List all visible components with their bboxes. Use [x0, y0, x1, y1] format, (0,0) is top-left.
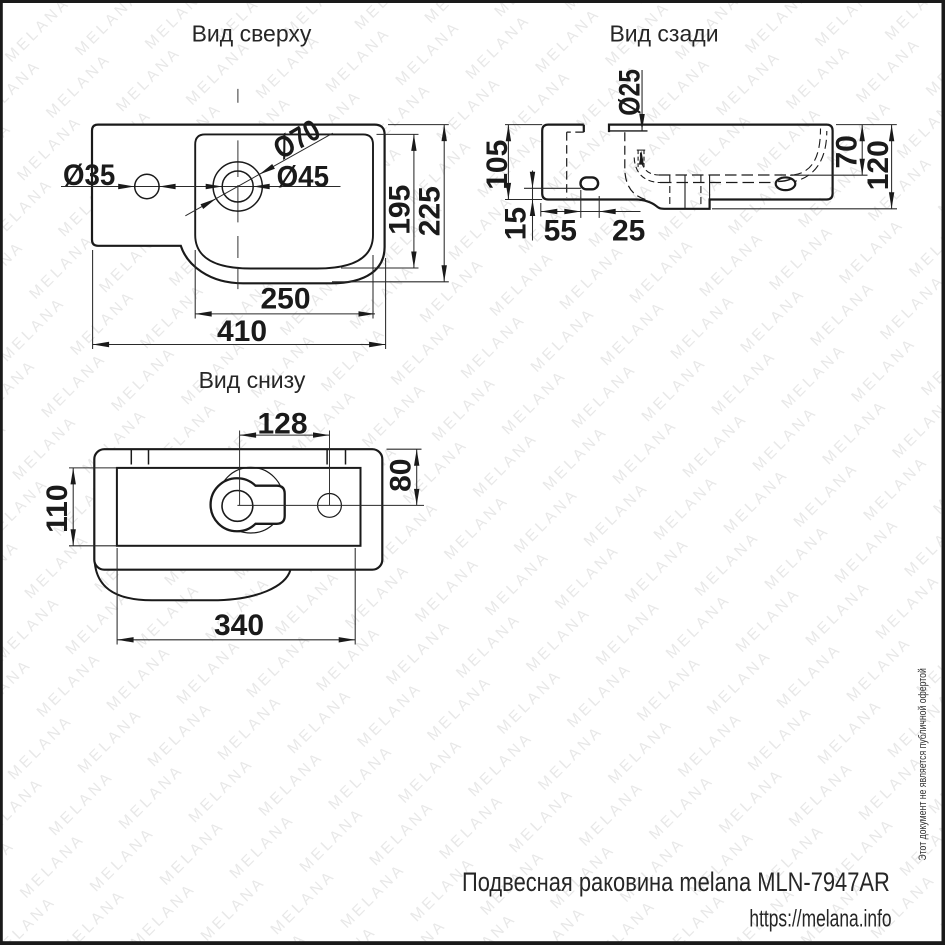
- svg-text:MELANA: MELANA: [424, 673, 496, 745]
- svg-text:MELANA: MELANA: [417, 255, 489, 327]
- svg-text:15: 15: [500, 207, 533, 240]
- svg-text:MELANA: MELANA: [713, 48, 785, 120]
- svg-text:MELANA: MELANA: [436, 791, 508, 863]
- svg-text:MELANA: MELANA: [113, 44, 185, 116]
- svg-text:MELANA: MELANA: [487, 248, 559, 320]
- svg-text:MELANA: MELANA: [535, 722, 607, 794]
- svg-text:MELANA: MELANA: [745, 703, 817, 775]
- svg-text:MELANA: MELANA: [610, 416, 682, 488]
- svg-text:MELANA: MELANA: [313, 623, 385, 695]
- svg-text:MELANA: MELANA: [366, 798, 438, 870]
- svg-text:Этот документ не является публ: Этот документ не является публичной офер…: [917, 668, 929, 861]
- svg-text:MELANA: MELANA: [581, 479, 653, 551]
- svg-text:MELANA: MELANA: [742, 0, 814, 57]
- svg-text:55: 55: [544, 214, 577, 247]
- svg-text:MELANA: MELANA: [593, 597, 665, 669]
- svg-text:MELANA: MELANA: [448, 910, 520, 945]
- svg-text:MELANA: MELANA: [819, 397, 891, 469]
- svg-text:MELANA: MELANA: [750, 403, 822, 475]
- svg-text:MELANA: MELANA: [463, 11, 535, 83]
- svg-text:MELANA: MELANA: [680, 410, 752, 482]
- svg-text:MELANA: MELANA: [108, 343, 180, 415]
- svg-text:MELANA: MELANA: [318, 324, 390, 396]
- svg-text:MELANA: MELANA: [297, 804, 369, 876]
- svg-text:MELANA: MELANA: [116, 761, 188, 833]
- svg-text:MELANA: MELANA: [774, 640, 846, 712]
- svg-text:MELANA: MELANA: [325, 742, 397, 814]
- svg-text:MELANA: MELANA: [75, 705, 147, 777]
- svg-text:MELANA: MELANA: [668, 291, 740, 363]
- svg-text:MELANA: MELANA: [256, 748, 328, 820]
- svg-text:MELANA: MELANA: [675, 709, 747, 781]
- svg-text:MELANA: MELANA: [564, 660, 636, 732]
- svg-text:MELANA: MELANA: [338, 860, 410, 932]
- svg-text:MELANA: MELANA: [0, 537, 23, 609]
- svg-text:MELANA: MELANA: [58, 886, 130, 945]
- svg-text:MELANA: MELANA: [658, 890, 730, 945]
- svg-text:MELANA: MELANA: [605, 716, 677, 788]
- svg-text:MELANA: MELANA: [569, 360, 641, 432]
- svg-text:225: 225: [414, 186, 447, 236]
- svg-text:MELANA: MELANA: [72, 0, 144, 59]
- svg-text:MELANA: MELANA: [22, 531, 94, 603]
- svg-text:MELANA: MELANA: [733, 584, 805, 656]
- svg-text:MELANA: MELANA: [5, 712, 77, 784]
- svg-text:MELANA: MELANA: [588, 897, 660, 945]
- svg-text:MELANA: MELANA: [696, 229, 768, 301]
- svg-text:MELANA: MELANA: [227, 811, 299, 883]
- svg-text:MELANA: MELANA: [10, 412, 82, 484]
- svg-text:MELANA: MELANA: [359, 380, 431, 452]
- svg-text:MELANA: MELANA: [128, 880, 200, 945]
- svg-text:MELANA: MELANA: [791, 459, 863, 531]
- svg-text:110: 110: [41, 484, 74, 532]
- svg-text:70: 70: [831, 135, 864, 168]
- svg-text:MELANA: MELANA: [388, 317, 460, 389]
- svg-text:MELANA: MELANA: [145, 699, 217, 771]
- svg-text:MELANA: MELANA: [576, 778, 648, 850]
- svg-text:MELANA: MELANA: [848, 334, 920, 406]
- svg-text:MELANA: MELANA: [393, 18, 465, 90]
- svg-text:MELANA: MELANA: [412, 554, 484, 626]
- svg-text:MELANA: MELANA: [43, 50, 115, 122]
- svg-text:MELANA: MELANA: [646, 772, 718, 844]
- svg-text:MELANA: MELANA: [0, 593, 64, 665]
- svg-text:MELANA: MELANA: [441, 492, 513, 564]
- svg-text:MELANA: MELANA: [133, 580, 205, 652]
- svg-text:MELANA: MELANA: [198, 873, 270, 945]
- svg-text:MELANA: MELANA: [87, 824, 159, 896]
- svg-text:MELANA: MELANA: [815, 696, 887, 768]
- svg-text:MELANA: MELANA: [0, 57, 45, 129]
- svg-text:MELANA: MELANA: [807, 278, 879, 350]
- svg-text:MELANA: MELANA: [684, 110, 756, 182]
- svg-text:MELANA: MELANA: [174, 636, 246, 708]
- svg-text:MELANA: MELANA: [889, 390, 945, 462]
- svg-text:https://melana.info: https://melana.info: [749, 906, 891, 933]
- svg-text:105: 105: [481, 140, 514, 190]
- svg-text:120: 120: [862, 140, 895, 190]
- svg-text:Ø35: Ø35: [63, 159, 115, 192]
- svg-text:MELANA: MELANA: [352, 0, 424, 33]
- svg-text:MELANA: MELANA: [157, 817, 229, 889]
- svg-text:MELANA: MELANA: [46, 768, 118, 840]
- svg-text:MELANA: MELANA: [183, 37, 255, 109]
- svg-text:MELANA: MELANA: [67, 287, 139, 359]
- svg-text:MELANA: MELANA: [894, 91, 945, 163]
- svg-text:MELANA: MELANA: [853, 35, 925, 107]
- svg-text:MELANA: MELANA: [918, 328, 945, 400]
- svg-text:MELANA: MELANA: [716, 765, 788, 837]
- svg-text:Ø25: Ø25: [614, 69, 647, 116]
- svg-text:MELANA: MELANA: [453, 610, 525, 682]
- svg-text:MELANA: MELANA: [634, 653, 706, 725]
- svg-text:MELANA: MELANA: [0, 175, 57, 247]
- svg-text:MELANA: MELANA: [901, 509, 945, 581]
- svg-text:MELANA: MELANA: [873, 571, 945, 643]
- svg-text:MELANA: MELANA: [17, 830, 89, 902]
- svg-text:MELANA: MELANA: [354, 679, 426, 751]
- svg-text:MELANA: MELANA: [215, 692, 287, 764]
- svg-text:MELANA: MELANA: [504, 67, 576, 139]
- svg-text:410: 410: [217, 315, 267, 348]
- svg-text:MELANA: MELANA: [518, 903, 590, 945]
- svg-text:MELANA: MELANA: [465, 729, 537, 801]
- svg-text:MELANA: MELANA: [704, 647, 776, 719]
- svg-text:MELANA: MELANA: [651, 472, 723, 544]
- svg-text:MELANA: MELANA: [422, 0, 494, 27]
- svg-text:MELANA: MELANA: [783, 41, 855, 113]
- svg-text:MELANA: MELANA: [2, 0, 74, 66]
- svg-text:MELANA: MELANA: [836, 216, 908, 288]
- svg-text:MELANA: MELANA: [552, 541, 624, 613]
- svg-text:MELANA: MELANA: [754, 104, 826, 176]
- svg-text:MELANA: MELANA: [663, 591, 735, 663]
- svg-text:MELANA: MELANA: [458, 311, 530, 383]
- svg-text:MELANA: MELANA: [272, 567, 344, 639]
- svg-text:MELANA: MELANA: [557, 242, 629, 314]
- svg-text:MELANA: MELANA: [598, 298, 670, 370]
- svg-text:MELANA: MELANA: [786, 759, 858, 831]
- svg-text:Подвесная раковина melana MLN-: Подвесная раковина melana MLN-7947AR: [462, 867, 890, 897]
- svg-text:MELANA: MELANA: [494, 666, 566, 738]
- svg-text:MELANA: MELANA: [812, 0, 884, 50]
- svg-text:Вид сзади: Вид сзади: [609, 21, 718, 47]
- svg-text:MELANA: MELANA: [692, 528, 764, 600]
- svg-text:MELANA: MELANA: [34, 649, 106, 721]
- svg-text:MELANA: MELANA: [639, 354, 711, 426]
- svg-text:MELANA: MELANA: [383, 617, 455, 689]
- svg-text:250: 250: [260, 283, 310, 316]
- svg-text:MELANA: MELANA: [0, 238, 28, 310]
- svg-text:MELANA: MELANA: [528, 304, 600, 376]
- svg-text:Вид сверху: Вид сверху: [192, 21, 312, 47]
- svg-text:MELANA: MELANA: [906, 209, 945, 281]
- svg-text:MELANA: MELANA: [268, 867, 340, 939]
- svg-text:MELANA: MELANA: [482, 548, 554, 620]
- svg-text:MELANA: MELANA: [832, 515, 904, 587]
- svg-text:MELANA: MELANA: [643, 54, 715, 126]
- svg-text:MELANA: MELANA: [540, 423, 612, 495]
- svg-text:MELANA: MELANA: [342, 561, 414, 633]
- svg-text:MELANA: MELANA: [0, 774, 47, 846]
- svg-text:MELANA: MELANA: [721, 466, 793, 538]
- svg-text:195: 195: [383, 185, 416, 235]
- svg-text:128: 128: [257, 408, 307, 441]
- svg-text:MELANA: MELANA: [709, 347, 781, 419]
- svg-text:MELANA: MELANA: [523, 604, 595, 676]
- svg-text:MELANA: MELANA: [885, 690, 945, 762]
- svg-text:MELANA: MELANA: [737, 285, 809, 357]
- svg-text:MELANA: MELANA: [877, 272, 945, 344]
- svg-text:MELANA: MELANA: [622, 535, 694, 607]
- svg-text:MELANA: MELANA: [506, 785, 578, 857]
- svg-text:80: 80: [385, 459, 418, 492]
- svg-text:MELANA: MELANA: [762, 522, 834, 594]
- svg-text:MELANA: MELANA: [323, 24, 395, 96]
- svg-text:Вид снизу: Вид снизу: [199, 367, 306, 393]
- svg-text:MELANA: MELANA: [803, 578, 875, 650]
- svg-text:MELANA: MELANA: [511, 485, 583, 557]
- svg-text:MELANA: MELANA: [844, 634, 916, 706]
- svg-text:MELANA: MELANA: [0, 294, 69, 366]
- svg-text:MELANA: MELANA: [499, 367, 571, 439]
- svg-text:MELANA: MELANA: [766, 222, 838, 294]
- svg-text:MELANA: MELANA: [860, 453, 932, 525]
- svg-text:MELANA: MELANA: [26, 231, 98, 303]
- svg-text:MELANA: MELANA: [395, 735, 467, 807]
- svg-text:25: 25: [612, 214, 645, 247]
- svg-text:MELANA: MELANA: [284, 686, 356, 758]
- svg-text:MELANA: MELANA: [0, 656, 35, 728]
- svg-text:MELANA: MELANA: [532, 5, 604, 77]
- svg-text:MELANA: MELANA: [186, 755, 258, 827]
- svg-text:MELANA: MELANA: [470, 429, 542, 501]
- svg-text:MELANA: MELANA: [429, 373, 501, 445]
- svg-text:MELANA: MELANA: [0, 356, 40, 428]
- svg-text:MELANA: MELANA: [38, 350, 110, 422]
- svg-text:MELANA: MELANA: [137, 281, 209, 353]
- svg-text:340: 340: [214, 609, 264, 642]
- svg-text:MELANA: MELANA: [778, 341, 850, 413]
- svg-text:MELANA: MELANA: [104, 643, 176, 715]
